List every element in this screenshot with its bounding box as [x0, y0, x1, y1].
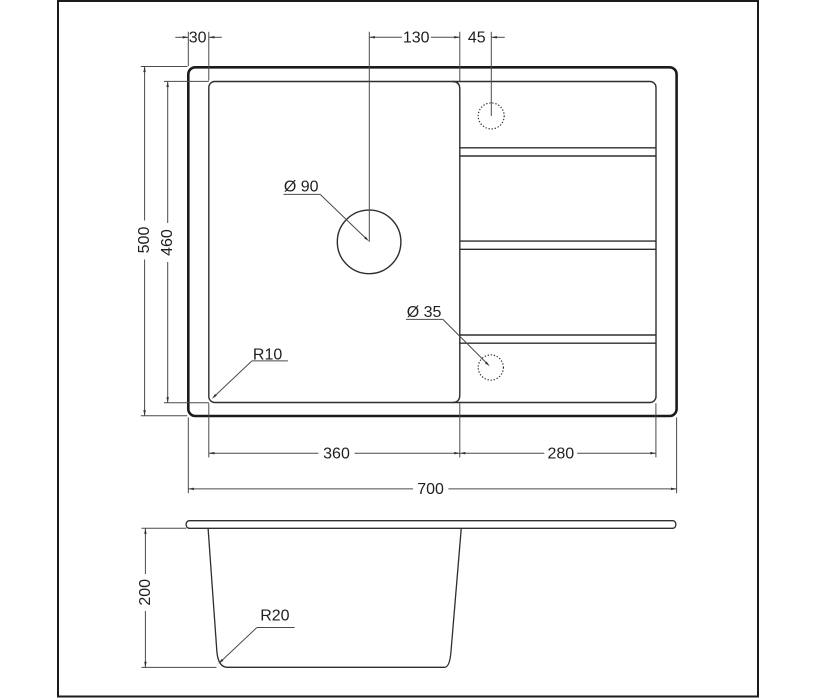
- svg-text:200: 200: [137, 579, 154, 606]
- svg-text:280: 280: [547, 446, 574, 463]
- svg-text:460: 460: [159, 229, 176, 256]
- svg-text:130: 130: [403, 29, 430, 46]
- svg-text:700: 700: [417, 481, 444, 498]
- svg-text:R20: R20: [260, 608, 289, 625]
- svg-text:Ø 90: Ø 90: [284, 179, 319, 196]
- svg-text:Ø 35: Ø 35: [407, 304, 442, 321]
- svg-text:45: 45: [468, 29, 486, 46]
- svg-text:30: 30: [189, 29, 207, 46]
- svg-text:360: 360: [323, 446, 350, 463]
- svg-text:500: 500: [136, 227, 153, 254]
